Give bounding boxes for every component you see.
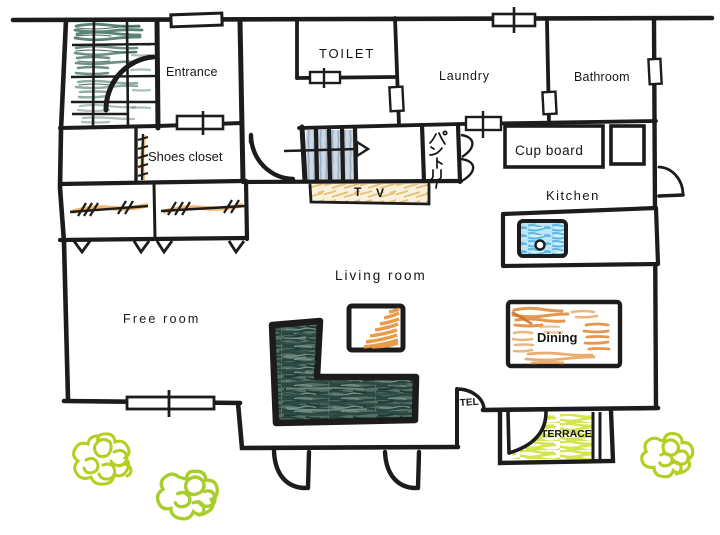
svg-text:TOILET: TOILET <box>319 46 375 61</box>
svg-text:Shoes closet: Shoes closet <box>148 149 223 164</box>
svg-text:T: T <box>354 185 362 199</box>
svg-text:Dining: Dining <box>537 330 577 345</box>
svg-text:Bathroom: Bathroom <box>574 70 630 84</box>
svg-text:Kitchen: Kitchen <box>546 188 600 203</box>
svg-text:Living room: Living room <box>335 268 427 283</box>
svg-text:Laundry: Laundry <box>439 69 490 83</box>
svg-text:TERRACE: TERRACE <box>541 428 592 440</box>
svg-text:Entrance: Entrance <box>166 65 218 79</box>
svg-text:Cup board: Cup board <box>515 143 583 158</box>
svg-text:V: V <box>376 186 384 200</box>
svg-text:Free room: Free room <box>123 312 200 326</box>
svg-text:TEL: TEL <box>459 397 479 409</box>
